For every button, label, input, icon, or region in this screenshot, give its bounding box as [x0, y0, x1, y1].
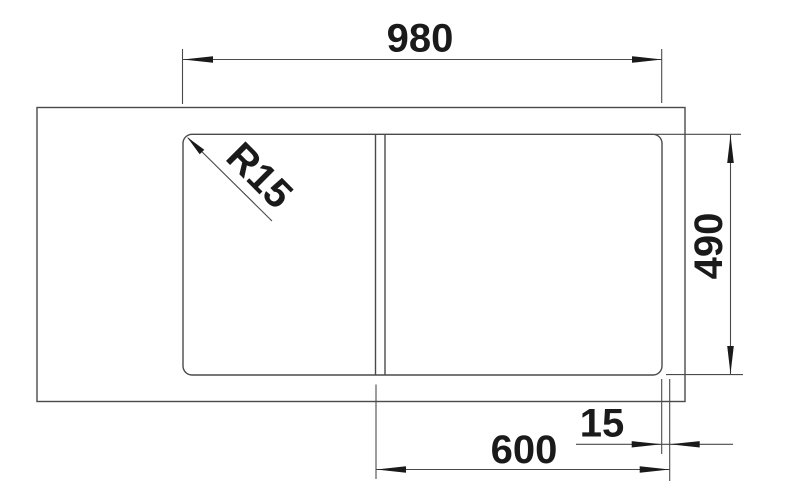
dimension-label-group: 980 490 600 15 R15 [218, 17, 731, 473]
drawing-canvas: 980 490 600 15 R15 [0, 0, 800, 496]
dim-label-overall-width: 980 [387, 17, 454, 61]
dim-label-corner-radius: R15 [218, 134, 301, 217]
dim-15-arrow-left [632, 441, 662, 447]
sink-dimension-drawing: 980 490 600 15 R15 [0, 0, 800, 496]
radius-leader-arrow [187, 137, 204, 154]
dim-label-rim-offset: 15 [580, 402, 625, 446]
dim-label-bowl-width: 600 [491, 428, 558, 472]
arrowhead-group [183, 56, 734, 473]
dimension-line-group [183, 49, 744, 481]
dim-label-overall-depth: 490 [687, 213, 731, 280]
dim-490-arrow-bottom [727, 346, 734, 374]
dim-490-arrow-top [727, 135, 734, 163]
dim-980-arrow-right [632, 56, 662, 63]
countertop-outline [37, 108, 685, 402]
dim-600-arrow-right [640, 466, 670, 473]
dim-15-arrow-right [670, 441, 700, 447]
outline-group [37, 108, 685, 402]
dim-980-arrow-left [183, 56, 213, 63]
dim-600-arrow-left [376, 466, 406, 473]
